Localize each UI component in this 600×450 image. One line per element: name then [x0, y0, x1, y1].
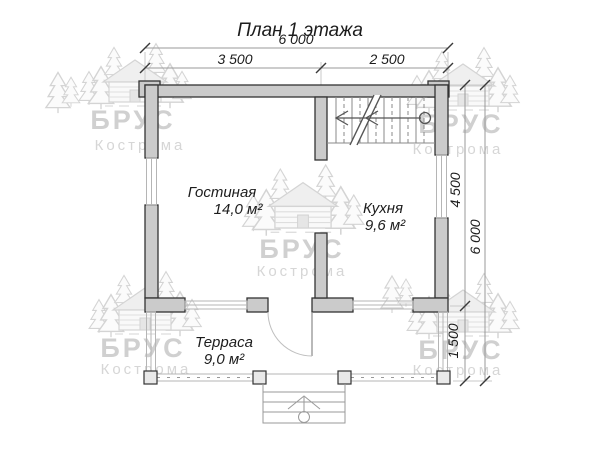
- wall-segment: [145, 298, 185, 312]
- room-label-kitchen: Кухня: [363, 200, 403, 217]
- wall-segment: [435, 218, 448, 298]
- watermark-brand: БРУС: [418, 109, 503, 139]
- watermark-brand: БРУС: [100, 333, 185, 363]
- room-label-terrace: Терраса: [195, 334, 253, 351]
- terrace-front-rails: [157, 374, 437, 381]
- room-area-kitchen: 9,6 м²: [365, 217, 406, 234]
- dim-right-upper: 4 500: [447, 172, 463, 207]
- wall-segment: [435, 85, 448, 155]
- room-area-terrace: 9,0 м²: [204, 351, 245, 368]
- dim-top-right: 2 500: [368, 51, 404, 67]
- wall-segment: [315, 97, 327, 160]
- wall-segment: [145, 85, 448, 97]
- wall-pier: [247, 298, 268, 312]
- floor-plan-canvas: БРУС Кострома БРУС Кострома БРУС Костром…: [0, 0, 600, 450]
- dim-top-total: 6 000: [278, 31, 313, 47]
- floor-plan-page: БРУС Кострома БРУС Кострома БРУС Костром…: [0, 0, 600, 450]
- door-swing-icon: [268, 312, 312, 356]
- watermark-city: Кострома: [257, 263, 348, 280]
- dim-right-lower: 1 500: [445, 323, 461, 358]
- wall-segment: [145, 205, 158, 298]
- wall-segment: [312, 298, 353, 312]
- wall-segment: [145, 85, 158, 158]
- dim-top-left: 3 500: [217, 51, 252, 67]
- wall-segment: [315, 233, 327, 298]
- entrance-steps-icon: [263, 384, 345, 423]
- wall-segment: [413, 298, 448, 312]
- dim-right-total: 6 000: [467, 219, 483, 254]
- watermark-brand: БРУС: [418, 335, 503, 365]
- window-right: [437, 155, 447, 218]
- watermark-city: Кострома: [413, 141, 504, 158]
- entrance-arrow-icon: [288, 396, 320, 423]
- window-left: [147, 158, 157, 205]
- room-label-living: Гостиная: [188, 184, 257, 201]
- room-area-living: 14,0 м²: [214, 201, 264, 218]
- watermark-brand: БРУС: [90, 105, 175, 135]
- watermark-city: Кострома: [95, 137, 186, 154]
- watermark-brand: БРУС: [259, 234, 344, 264]
